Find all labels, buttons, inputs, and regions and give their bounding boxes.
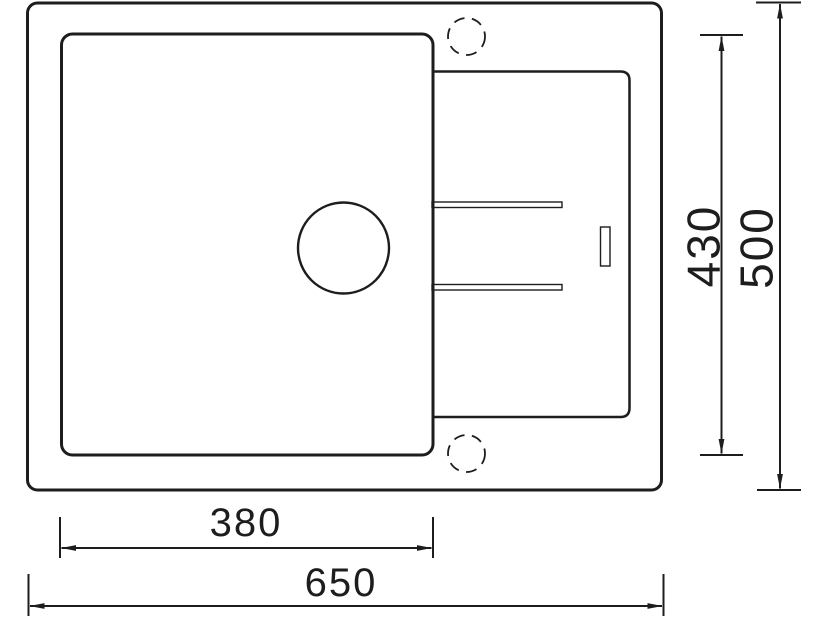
tap-hole-bottom [448, 435, 485, 472]
sink-dimension-drawing: 380 650 430 500 [0, 0, 826, 620]
dimension-label-basin-depth: 430 [678, 205, 730, 288]
drainboard-groove-top [432, 202, 562, 208]
dimension-label-overall-depth: 500 [731, 206, 783, 289]
drainboard-groove-bottom [432, 285, 562, 291]
basin-outline [62, 34, 434, 455]
dimension-label-basin-width: 380 [210, 501, 283, 545]
dimension-label-overall-width: 650 [305, 561, 378, 605]
drain-hole [298, 203, 389, 294]
dimension-basin-width: 380 [60, 501, 433, 558]
tap-hole-top [448, 18, 485, 55]
sink-technical-drawing-svg: 380 650 430 500 [0, 0, 826, 620]
dimension-overall-width: 650 [29, 561, 664, 616]
dimension-overall-depth: 500 [731, 3, 802, 491]
overflow-slot [601, 227, 611, 266]
